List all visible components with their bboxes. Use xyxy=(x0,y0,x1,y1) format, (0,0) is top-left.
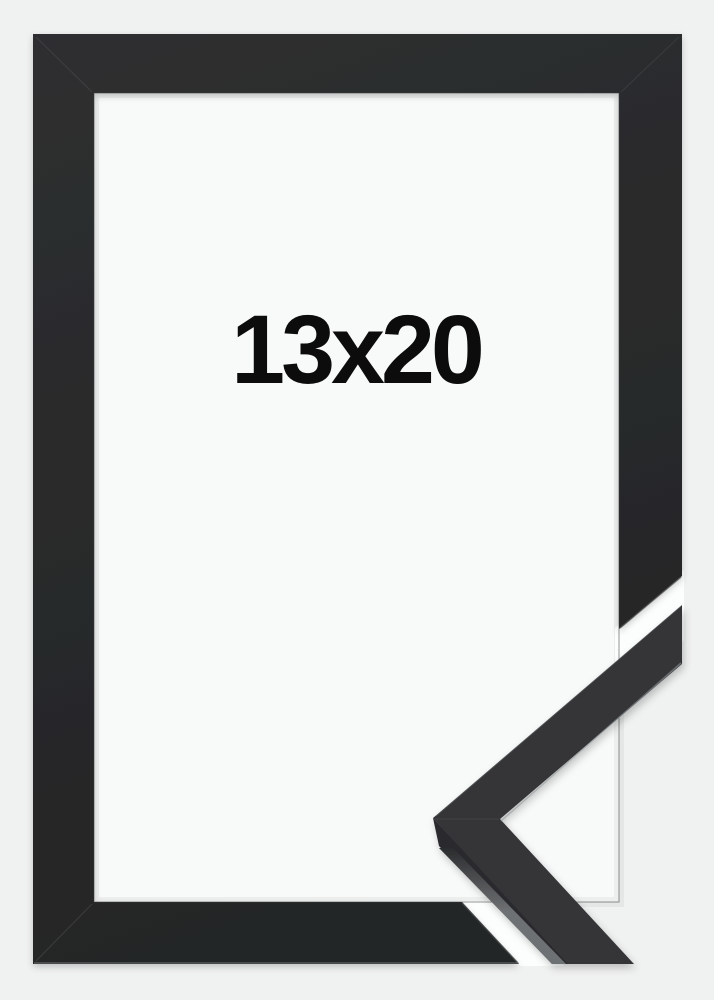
product-photo: 13x20 xyxy=(0,0,714,1000)
size-label: 13x20 xyxy=(231,295,481,404)
frame-photo-canvas: 13x20 xyxy=(0,0,714,1000)
